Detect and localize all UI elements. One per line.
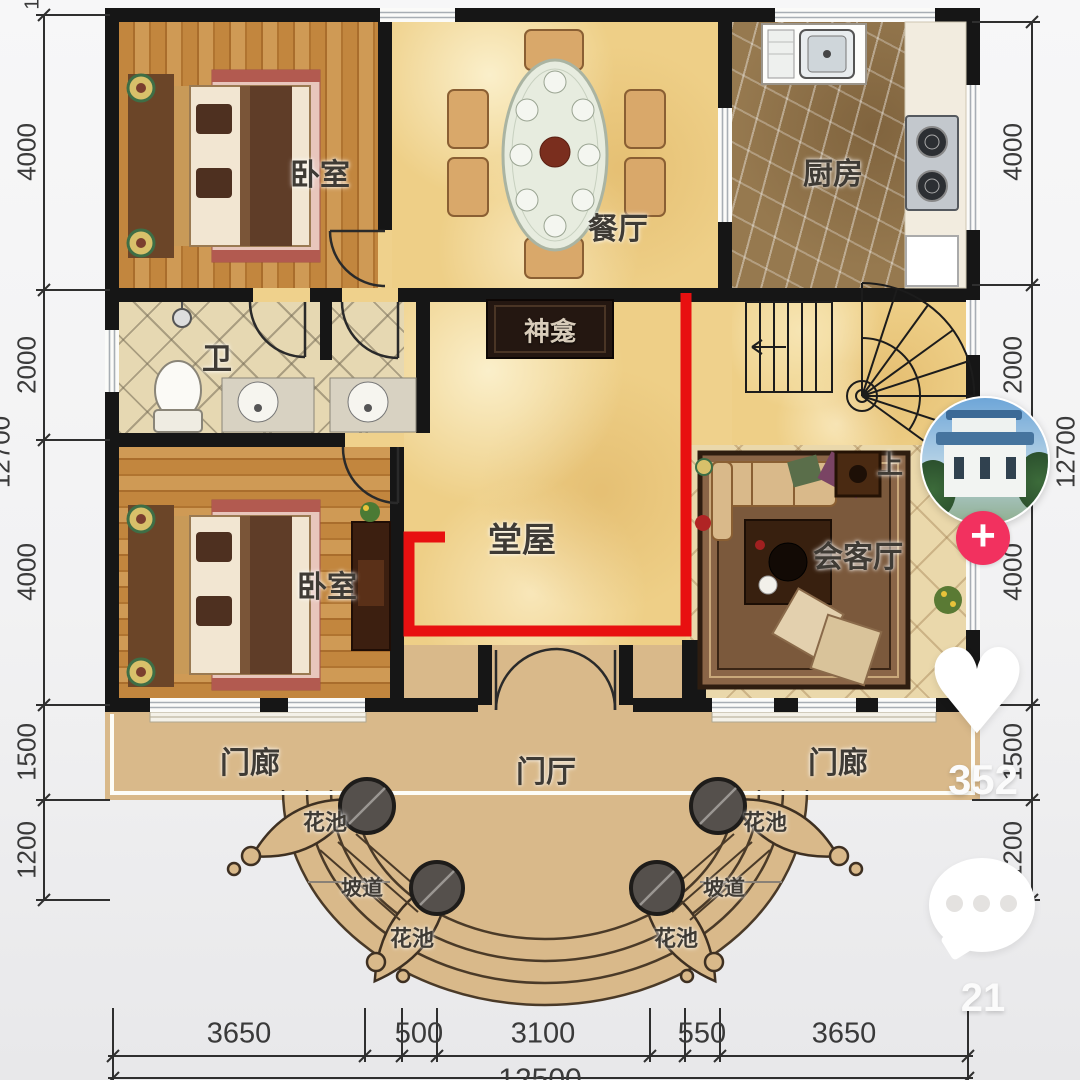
like-heart-icon[interactable]: ♥ bbox=[907, 636, 1047, 748]
avatar-house-window bbox=[1006, 457, 1016, 479]
dim-bottom-1: 3650 bbox=[207, 1018, 272, 1051]
dim-right-total: 12700 bbox=[1051, 416, 1080, 488]
comment-dot bbox=[946, 895, 963, 912]
dim-bottom-5: 3650 bbox=[812, 1018, 877, 1051]
label-flower-bed-1: 花池 bbox=[303, 805, 347, 837]
avatar-house-body bbox=[944, 445, 1026, 497]
plus-icon: + bbox=[970, 511, 996, 560]
screenshot-stage: 卧室 餐厅 厨房 卫 神龛 堂屋 会客厅 上 卧室 门廊 门厅 门廊 花池 花池… bbox=[0, 0, 1080, 1080]
dim-top-partial: 1 bbox=[22, 0, 45, 10]
dim-left-3: 4000 bbox=[12, 543, 43, 601]
porch-step-bands bbox=[150, 712, 936, 722]
label-flower-bed-4: 花池 bbox=[654, 921, 698, 953]
avatar-house-roof bbox=[936, 432, 1034, 445]
heart-glyph: ♥ bbox=[924, 623, 1030, 761]
label-bedroom-bottom: 卧室 bbox=[297, 562, 357, 606]
follow-button[interactable]: + bbox=[956, 511, 1010, 565]
label-porch-right: 门廊 bbox=[808, 738, 868, 782]
dim-left-total: 12700 bbox=[0, 416, 17, 488]
dim-right-1: 4000 bbox=[998, 123, 1029, 181]
dim-left-5: 1200 bbox=[12, 821, 43, 879]
dim-left-2: 2000 bbox=[12, 336, 43, 394]
label-living: 会客厅 bbox=[813, 532, 903, 576]
label-ramp-left: 坡道 bbox=[341, 872, 383, 902]
comment-bubble-icon[interactable] bbox=[929, 858, 1035, 952]
avatar-house-window bbox=[954, 457, 964, 479]
avatar-house-window bbox=[980, 457, 990, 479]
label-porch-left: 门廊 bbox=[220, 738, 280, 782]
dim-left-1: 4000 bbox=[12, 123, 43, 181]
like-count: 352 bbox=[913, 756, 1053, 804]
label-flower-bed-2: 花池 bbox=[743, 805, 787, 837]
dim-bottom-3: 3100 bbox=[511, 1018, 576, 1051]
label-hall: 堂屋 bbox=[488, 513, 556, 562]
label-shrine: 神龛 bbox=[524, 312, 576, 349]
kitchen-fixtures bbox=[762, 22, 966, 288]
label-bedroom-top: 卧室 bbox=[290, 150, 350, 194]
label-dining: 餐厅 bbox=[588, 204, 648, 248]
dim-bottom-4: 550 bbox=[678, 1018, 726, 1051]
label-entry-hall: 门厅 bbox=[516, 747, 576, 791]
comment-dot bbox=[973, 895, 990, 912]
label-stairs-up: 上 bbox=[877, 445, 903, 482]
comment-dot bbox=[1000, 895, 1017, 912]
dim-right-2: 2000 bbox=[998, 336, 1029, 394]
avatar[interactable] bbox=[920, 396, 1050, 526]
dim-bottom-2: 500 bbox=[395, 1018, 443, 1051]
comment-count: 21 bbox=[913, 976, 1053, 1021]
dim-bottom-total: 12500 bbox=[498, 1063, 581, 1080]
label-bath: 卫 bbox=[202, 334, 232, 378]
label-kitchen: 厨房 bbox=[803, 149, 863, 193]
label-flower-bed-3: 花池 bbox=[390, 921, 434, 953]
dim-left-4: 1500 bbox=[12, 723, 43, 781]
bathroom-fixtures bbox=[154, 302, 416, 432]
label-ramp-right: 坡道 bbox=[703, 872, 745, 902]
